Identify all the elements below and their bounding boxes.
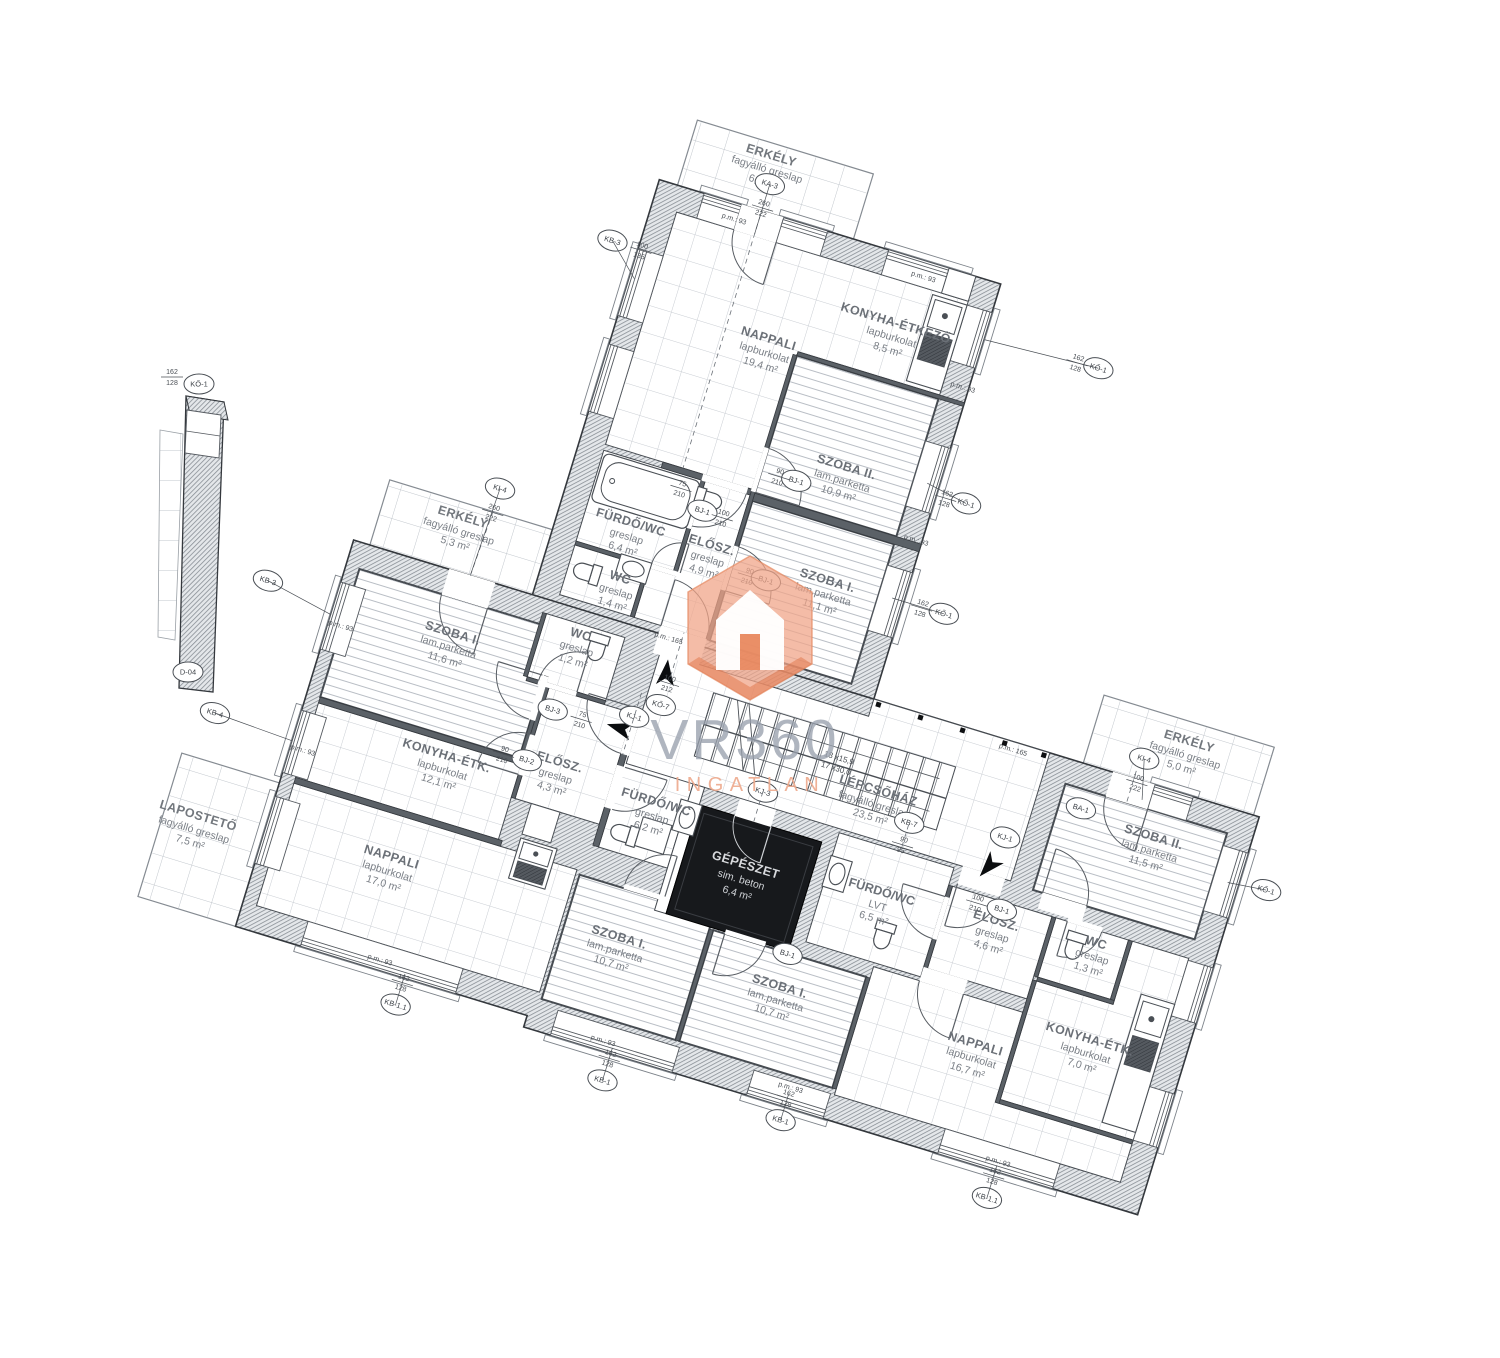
svg-text:162: 162 — [166, 369, 178, 376]
svg-text:VR360: VR360 — [650, 708, 839, 772]
svg-text:INGATLAN: INGATLAN — [675, 774, 826, 796]
svg-text:128: 128 — [166, 380, 178, 387]
svg-text:KŐ-1: KŐ-1 — [190, 380, 208, 389]
svg-text:D-04: D-04 — [180, 668, 196, 677]
